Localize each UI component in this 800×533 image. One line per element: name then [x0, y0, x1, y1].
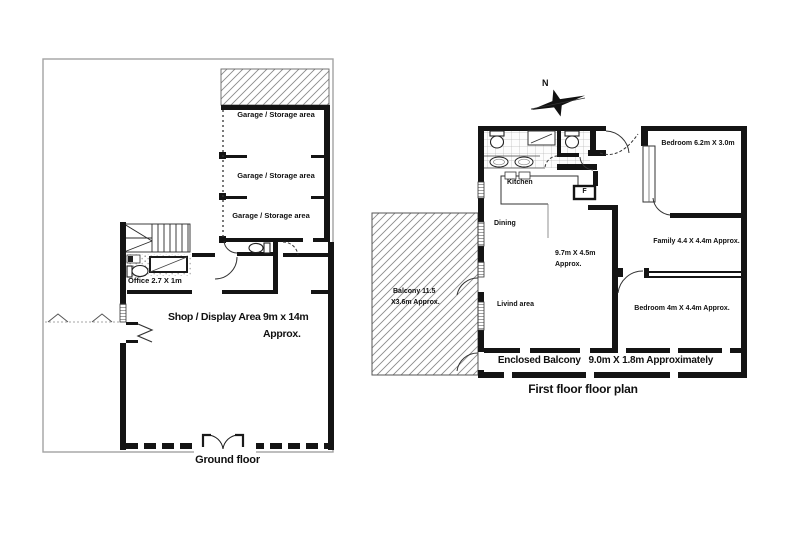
driveway-hatch: [221, 69, 329, 105]
sink-icon: [519, 172, 530, 179]
garage-label: Garage / Storage area: [216, 212, 326, 220]
living-size-approx: Approx.: [555, 261, 581, 269]
shopfront: [126, 435, 332, 453]
first-floor-caption: First floor floor plan: [483, 383, 683, 396]
garage-label: Garage / Storage area: [221, 111, 331, 119]
office-area: [126, 254, 192, 277]
folding-door: [138, 324, 152, 342]
bedroom-top-label: Bedroom 6.2m X 3.0m: [652, 140, 744, 148]
shop-right-wall: [328, 242, 334, 450]
garage-label: Garage / Storage area: [221, 172, 331, 180]
sink-icon: [128, 256, 133, 262]
floor-plan-sheet: Garage / Storage area Garage / Storage a…: [0, 0, 800, 533]
left-wall: [120, 294, 152, 450]
enclosed-balcony-label: Enclosed Balcony 9.0m X 1.8m Approximate…: [478, 355, 733, 366]
stair-wall: [120, 222, 126, 294]
shop-area-approx: Approx.: [263, 329, 301, 341]
family-label: Family 4.4 X 4.4m Approx.: [648, 238, 745, 246]
north-arrow-icon: [527, 82, 588, 124]
north-label: N: [542, 78, 549, 88]
fridge-label: F: [574, 188, 595, 196]
living-size-label: 9.7m X 4.5m: [555, 250, 595, 258]
toilet-icon: [565, 131, 579, 148]
shop-area-label: Shop / Display Area: [168, 312, 261, 324]
bathroom: [484, 131, 606, 170]
dining-label: Dining: [494, 220, 516, 228]
toilet-icon: [490, 131, 504, 148]
shop-area-size: 9m x 14m: [263, 312, 308, 324]
office-label: Office 2.7 X 1m: [128, 277, 182, 285]
floor-plan-drawing: [0, 0, 800, 533]
balcony-size-label: X3.6m Approx.: [391, 299, 440, 307]
enclosed-balcony-wall: [484, 348, 741, 353]
first-floor-plan: [372, 82, 747, 378]
kitchen-label: Kitchen: [507, 179, 533, 187]
break-lines: [45, 314, 120, 322]
stairs: [124, 224, 190, 252]
ground-floor-caption: Ground floor: [155, 454, 300, 466]
living-label: Livind area: [497, 301, 534, 309]
toilet-icon: [249, 243, 270, 253]
balcony-label: Balcony 11.5: [393, 288, 435, 296]
sink-icon: [505, 172, 516, 179]
room-divider: [644, 268, 747, 278]
middle-wall: [588, 205, 623, 348]
bedroom-bottom-label: Bedroom 4m X 4.4m Approx.: [628, 305, 736, 313]
